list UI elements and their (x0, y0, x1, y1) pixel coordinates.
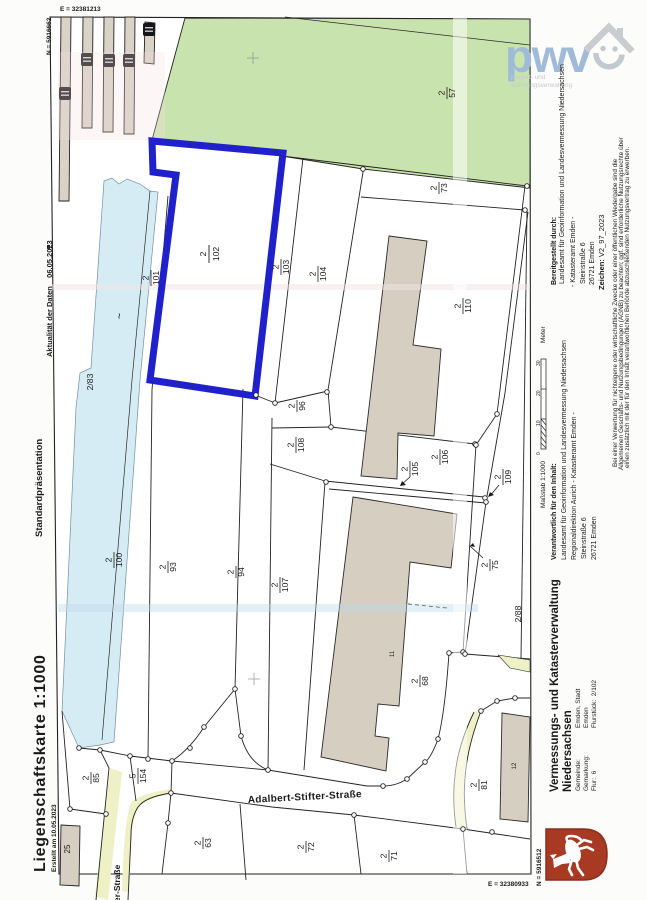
svg-text:2: 2 (410, 678, 420, 683)
svg-text:107: 107 (280, 578, 290, 593)
svg-text:71: 71 (389, 851, 399, 861)
svg-text:154: 154 (138, 769, 148, 784)
svg-text:101: 101 (151, 271, 161, 286)
svg-text:2: 2 (158, 564, 168, 569)
svg-text:Meter: Meter (540, 326, 547, 343)
svg-text:Landesamt für Geoinformation u: Landesamt für Geoinformation und Landesv… (559, 64, 566, 284)
svg-text:26721 Emden: 26721 Emden (591, 516, 598, 560)
svg-text:2: 2 (198, 251, 208, 256)
svg-text:104: 104 (318, 267, 328, 282)
svg-text:- Katasteramt Emden -: - Katasteramt Emden - (570, 216, 577, 287)
svg-text:Standardpräsentation: Standardpräsentation (34, 439, 45, 537)
svg-text:2: 2 (287, 403, 297, 408)
svg-text:109: 109 (503, 470, 513, 485)
svg-text:2/88: 2/88 (513, 605, 523, 622)
svg-text:2: 2 (379, 853, 389, 858)
svg-text:96: 96 (297, 401, 307, 411)
svg-text:2: 2 (429, 185, 439, 190)
svg-text:2: 2 (493, 474, 503, 479)
svg-text:N = 5916662: N = 5916662 (46, 17, 53, 55)
svg-text:Vermessungs- und Katasterverwa: Vermessungs- und Katasterverwaltung (549, 579, 561, 792)
svg-text:5: 5 (128, 773, 138, 778)
svg-text:Steinstraße 6: Steinstraße 6 (580, 242, 587, 284)
svg-text:26721 Emden: 26721 Emden (589, 241, 596, 285)
svg-text:2: 2 (226, 569, 236, 574)
svg-text:108: 108 (296, 438, 306, 453)
svg-text:100: 100 (114, 553, 124, 568)
svg-text:einen zusätzlich mit der für d: einen zusätzlich mit der für den Inhalt … (624, 147, 631, 468)
svg-text:Verantwortlich für den Inhalt:: Verantwortlich für den Inhalt: (551, 463, 558, 560)
svg-text:2: 2 (141, 275, 151, 280)
svg-text:2: 2 (308, 271, 318, 276)
svg-text:2/83: 2/83 (85, 373, 95, 390)
svg-text:110: 110 (463, 299, 473, 313)
svg-text:30: 30 (536, 360, 542, 366)
svg-text:12: 12 (512, 762, 518, 769)
svg-text:73: 73 (439, 183, 449, 193)
svg-text:Maßstab 1:1000: Maßstab 1:1000 (540, 461, 547, 508)
svg-text:Gemarkung:: Gemarkung: (583, 755, 590, 791)
svg-text:Steinstraße 6: Steinstraße 6 (581, 517, 588, 559)
svg-text:projekt- und: projekt- und (511, 74, 546, 81)
svg-text:2: 2 (430, 454, 440, 459)
svg-text:103: 103 (281, 260, 291, 275)
svg-text:57: 57 (447, 88, 457, 98)
svg-text:Emden: Emden (583, 707, 590, 728)
svg-text:2: 2 (437, 90, 447, 95)
svg-text:72: 72 (306, 842, 316, 852)
svg-text:0: 0 (536, 452, 542, 455)
svg-text:105: 105 (410, 462, 420, 477)
svg-text:2: 2 (104, 557, 114, 562)
svg-text:E = 32381213: E = 32381213 (60, 6, 101, 13)
svg-text:Flur: 6: Flur: 6 (591, 770, 598, 791)
svg-text:75: 75 (490, 560, 500, 570)
svg-text:20: 20 (536, 390, 542, 396)
svg-text:~: ~ (114, 313, 126, 319)
svg-text:10: 10 (536, 420, 542, 426)
svg-text:106: 106 (440, 450, 450, 465)
svg-text:Liegenschaftskarte 1:1000: Liegenschaftskarte 1:1000 (32, 654, 49, 872)
svg-text:2: 2 (480, 562, 490, 567)
svg-text:25: 25 (63, 844, 72, 853)
svg-text:Flurstück: 2/102: Flurstück: 2/102 (591, 680, 598, 728)
svg-text:81: 81 (479, 780, 489, 790)
svg-text:94: 94 (236, 567, 246, 577)
svg-text:er-Straße: er-Straße (112, 864, 122, 900)
svg-text:93: 93 (168, 562, 178, 572)
svg-text:2: 2 (81, 775, 91, 780)
svg-text:Bereitgestellt durch:: Bereitgestellt durch: (551, 217, 558, 285)
svg-text:Niedersachsen: Niedersachsen (562, 710, 574, 792)
svg-text:2: 2 (193, 840, 203, 845)
svg-text:2: 2 (270, 582, 280, 587)
svg-text:85: 85 (91, 773, 101, 783)
svg-text:Zeichen: V2_97_2023: Zeichen: V2_97_2023 (597, 215, 606, 290)
svg-text:Regionaldirektion Aurich - Kat: Regionaldirektion Aurich - Katasteramt E… (571, 411, 578, 560)
svg-text:N = 5916512: N = 5916512 (536, 848, 543, 886)
svg-text:Aktualität der Daten 06.05.: Aktualität der Daten 06.05.2023 (45, 240, 54, 357)
svg-text:2: 2 (271, 264, 281, 269)
svg-text:E = 32380933: E = 32380933 (488, 881, 529, 888)
svg-text:68: 68 (420, 676, 430, 686)
svg-text:Emden, Stadt: Emden, Stadt (575, 688, 582, 728)
svg-text:63: 63 (203, 838, 213, 848)
svg-text:2: 2 (453, 303, 463, 308)
svg-text:2: 2 (286, 442, 296, 447)
svg-text:Erstellt am 10.05.2023: Erstellt am 10.05.2023 (51, 804, 58, 872)
svg-text:11: 11 (390, 650, 396, 657)
svg-text:Gemeinde:: Gemeinde: (575, 759, 582, 791)
svg-text:2: 2 (469, 782, 479, 787)
svg-text:2: 2 (296, 844, 306, 849)
svg-text:Landesamt für Geoinformation u: Landesamt für Geoinformation und Landesv… (561, 340, 568, 560)
svg-text:102: 102 (211, 247, 221, 262)
svg-text:2: 2 (400, 466, 410, 471)
